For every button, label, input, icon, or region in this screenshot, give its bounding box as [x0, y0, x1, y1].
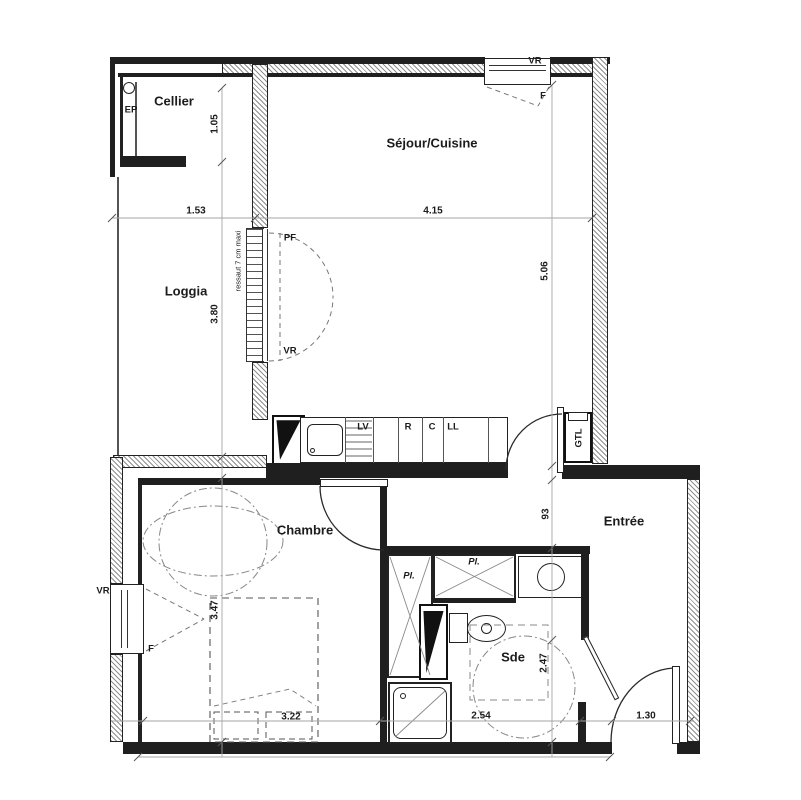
wall-chambre-east — [380, 483, 387, 745]
wall-chambre-north — [138, 478, 320, 485]
wall-sde-east — [581, 552, 589, 640]
annotation-label-vr: VR — [283, 346, 296, 357]
annotation-label-c: C — [429, 422, 436, 433]
wc-bowl-center — [481, 623, 492, 634]
wall-bath-north — [387, 546, 590, 554]
counter-divider-5 — [443, 417, 444, 463]
chambre-turning-circle — [159, 488, 267, 596]
sink-drain — [310, 448, 315, 453]
wall-placard2-south — [433, 598, 516, 603]
annotation-label-vr: VR — [96, 586, 109, 597]
chambre-ellipse — [143, 506, 283, 576]
wall-entree-east — [687, 479, 700, 742]
dimension-label-1-05: 1.05 — [210, 114, 221, 133]
annotation-label-ep: EP — [125, 105, 138, 116]
pf-swing-arc-top — [269, 233, 333, 297]
bed-cover-line — [214, 689, 316, 706]
room-label-cellier: Cellier — [154, 94, 194, 109]
dimension-label-5-06: 5.06 — [540, 261, 551, 280]
annotation-label-pf: PF — [284, 233, 296, 244]
pf-window-frame — [262, 229, 268, 361]
dimension-label-2-47: 2.47 — [539, 653, 550, 672]
bed-outline — [210, 598, 318, 742]
loggia-edge-line — [117, 177, 119, 455]
dimension-label-3-47: 3.47 — [210, 600, 221, 619]
wall-sde-stub — [578, 702, 586, 742]
wall-chambre-west-b — [138, 654, 142, 742]
wall-divider-upper — [252, 64, 268, 228]
washbasin-bowl — [537, 563, 565, 591]
chambre-door-arc — [320, 486, 384, 550]
room-label-s-jour-cuisine: Séjour/Cuisine — [386, 136, 477, 151]
annotation-label-ll: LL — [447, 422, 459, 433]
wall-left-lower-a — [110, 457, 123, 584]
annotation-label-lv: LV — [357, 422, 368, 433]
wall-right-outer — [592, 57, 608, 464]
wall-chambre-west-a — [138, 485, 142, 584]
annotation-label-pl-: Pl. — [468, 557, 480, 568]
annotation-label-f: F — [148, 644, 154, 655]
dimension-label-2-54: 2.54 — [471, 711, 490, 722]
wall-divider-lower — [252, 362, 268, 420]
wall-sejour-south — [266, 463, 508, 478]
wall-entree-north — [562, 465, 700, 479]
wall-bottom-main — [123, 742, 612, 754]
dimension-label-3-22: 3.22 — [281, 712, 300, 723]
entry-door-leaf — [672, 666, 680, 744]
sejour-door-leaf — [557, 407, 564, 473]
sde-door-leaf — [583, 636, 619, 701]
wall-top-inner-a — [118, 73, 485, 77]
dimension-label-4-15: 4.15 — [423, 206, 442, 217]
chambre-window-swing — [146, 589, 204, 651]
wall-top-inner-b — [550, 73, 592, 77]
wall-ep-right — [135, 82, 137, 158]
ep-pipe-symbol — [123, 82, 135, 94]
wall-bottom-right — [677, 742, 700, 754]
dimension-label-93: 93 — [541, 508, 552, 519]
room-label-entr-e: Entrée — [604, 514, 644, 529]
pf-swing-arc-bottom — [269, 297, 333, 361]
dimension-label-1-30: 1.30 — [636, 711, 655, 722]
wall-left-lower-b — [110, 654, 123, 742]
room-label-loggia: Loggia — [165, 284, 208, 299]
wall-loggia-south — [113, 455, 267, 468]
chambre-door-leaf — [320, 479, 388, 487]
annotation-label-r: R — [405, 422, 412, 433]
chambre-window-glazing — [121, 590, 128, 648]
counter-divider-3 — [398, 417, 399, 463]
wc-cistern — [449, 613, 468, 643]
annotation-label-pl-: Pl. — [403, 571, 415, 582]
counter-divider-4 — [422, 417, 423, 463]
gtl-small-box — [568, 412, 588, 421]
annotation-label-vr: VR — [528, 56, 541, 67]
annotation-label-f: F — [540, 91, 546, 102]
dimension-label-1-53: 1.53 — [186, 206, 205, 217]
annotation-label-gtl: GTL — [574, 429, 585, 448]
sejour-door-arc — [506, 414, 562, 470]
wall-left-upper — [110, 57, 115, 177]
dimension-label-3-80: 3.80 — [210, 304, 221, 323]
room-label-chambre: Chambre — [277, 523, 333, 538]
floor-plan-canvas: CellierSéjour/CuisineLoggiaChambreEntrée… — [0, 0, 801, 800]
entry-door-arc — [611, 668, 673, 742]
annotation-label-ressaut-7-cm-maxi: ressaut 7 cm maxi — [234, 231, 243, 292]
shower-drain — [400, 693, 406, 699]
wall-ep-stub — [120, 156, 186, 167]
bed-pillow-left — [214, 712, 258, 739]
room-label-sde: Sde — [501, 650, 525, 665]
counter-divider-6 — [488, 417, 489, 463]
counter-divider-1 — [345, 417, 346, 463]
counter-divider-2 — [373, 417, 374, 463]
